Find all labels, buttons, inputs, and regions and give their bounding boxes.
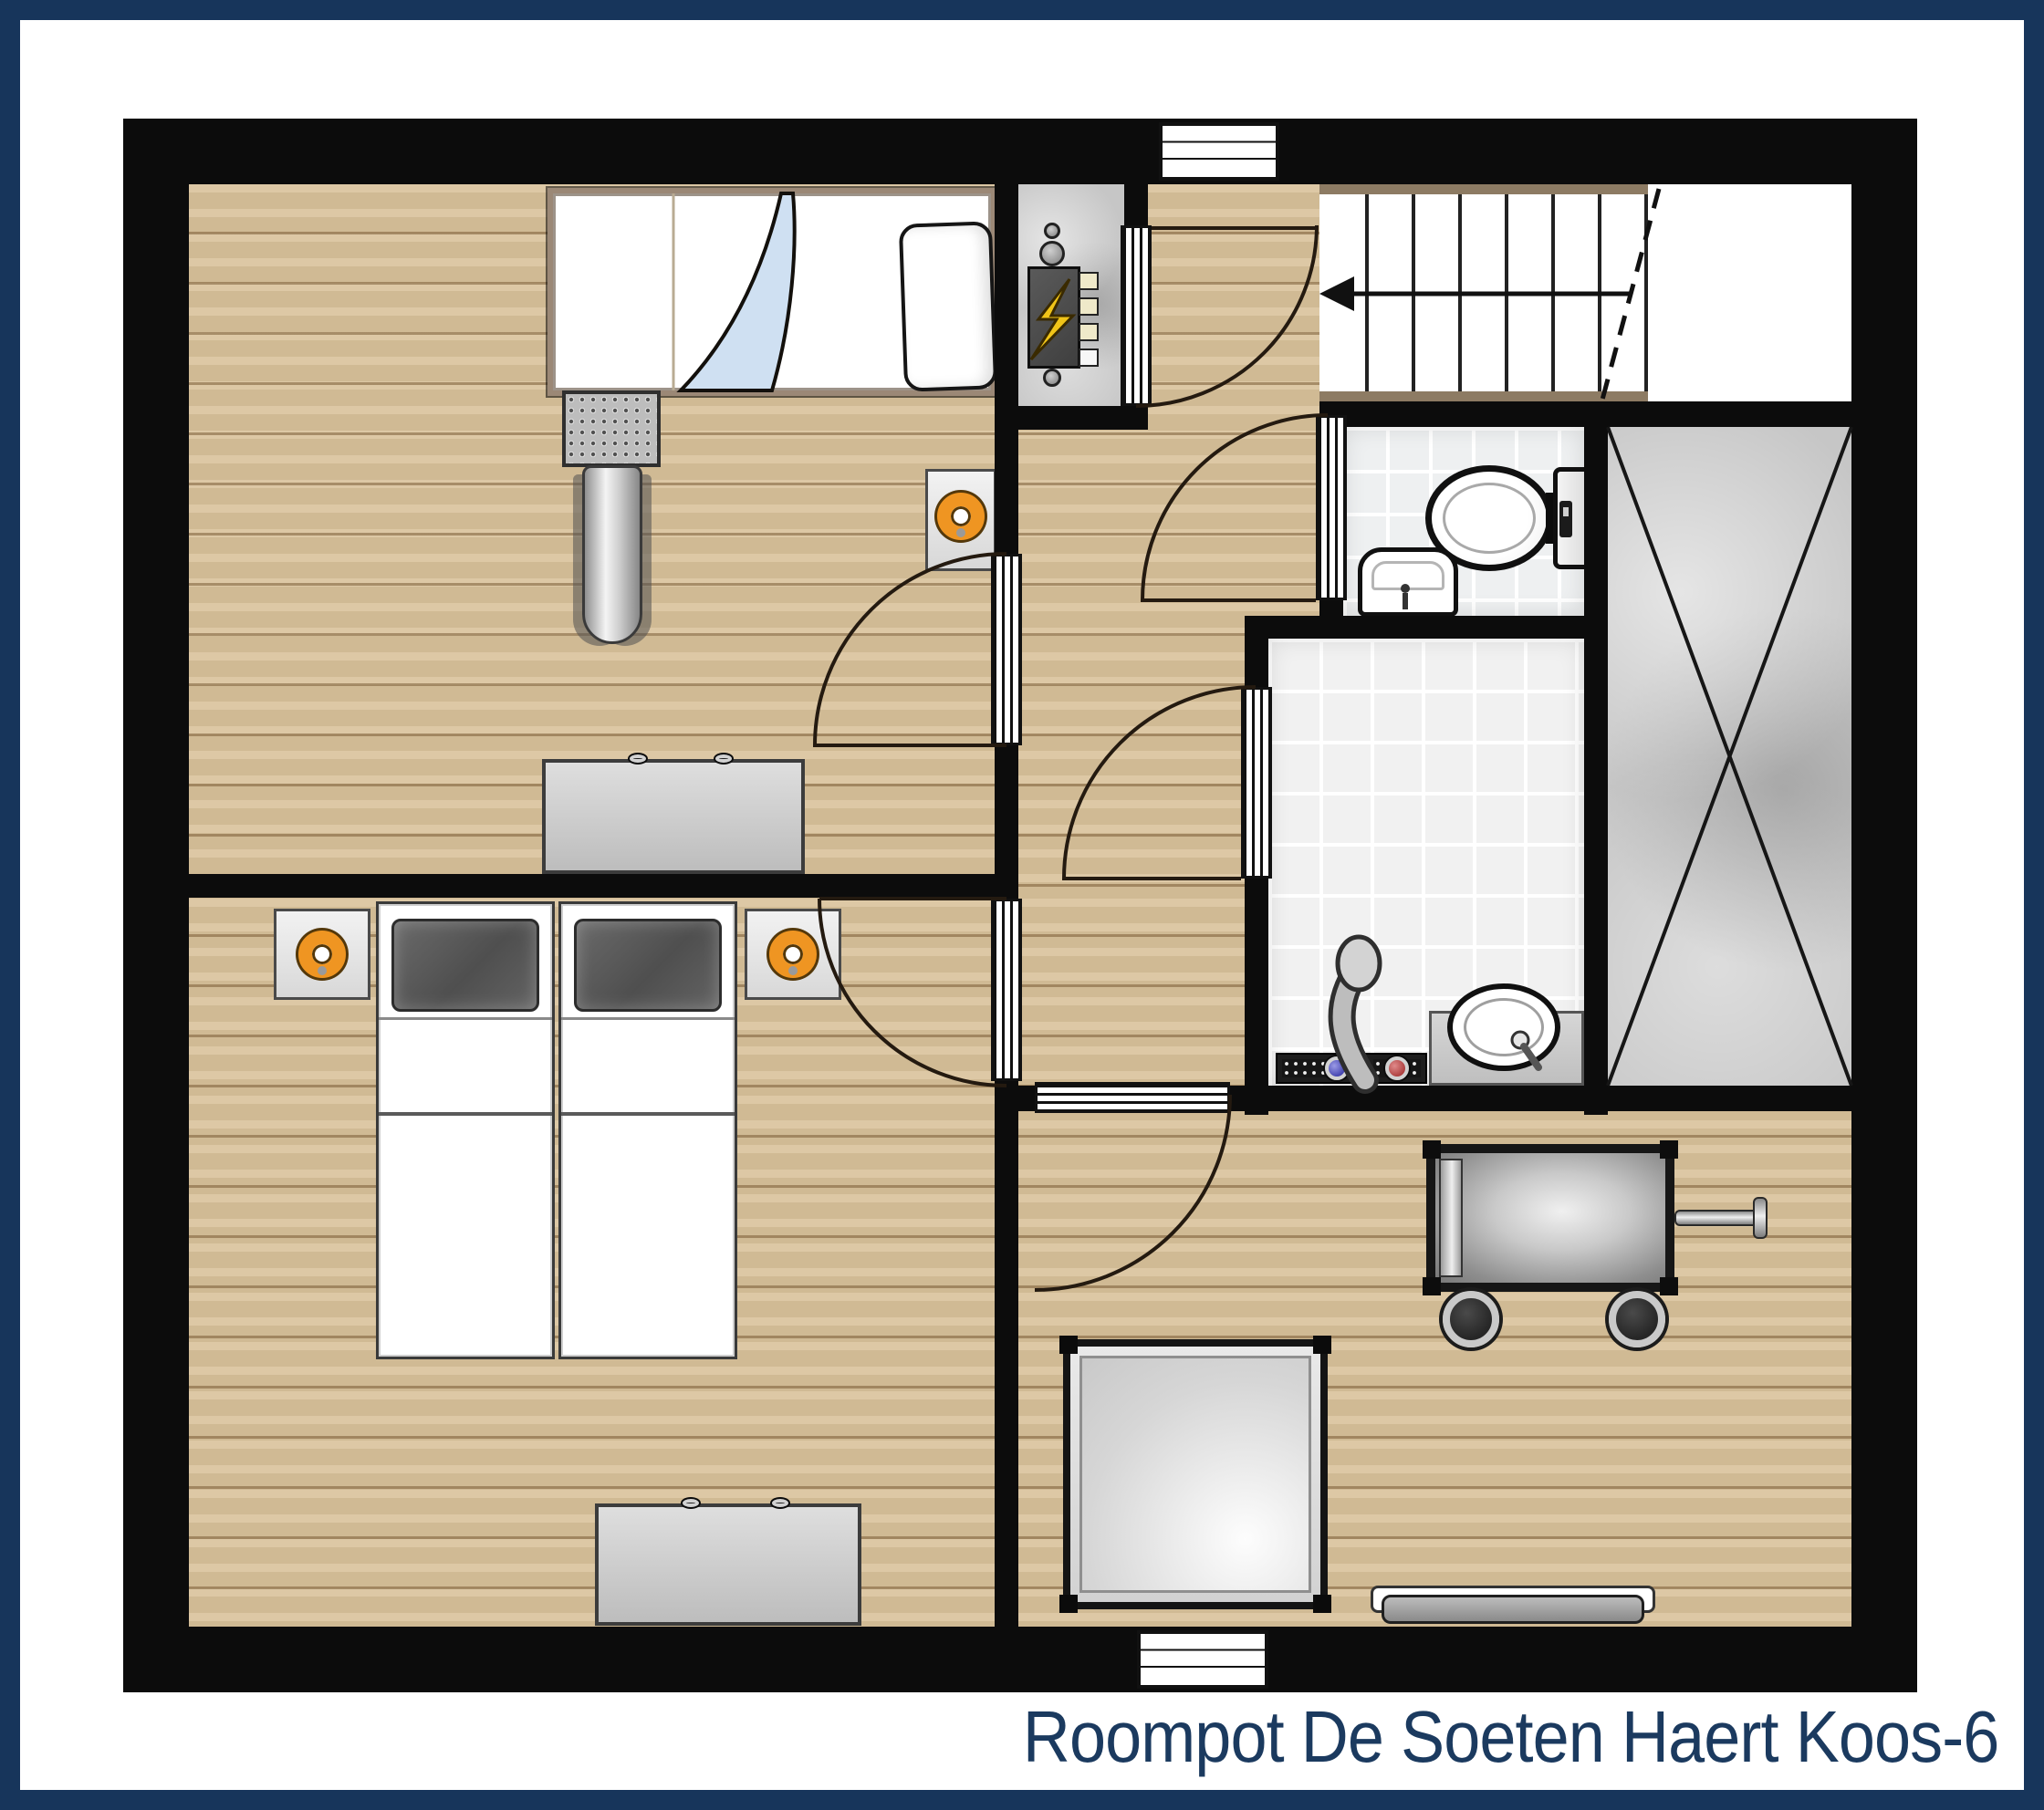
- navy-frame-border: [0, 0, 2044, 1810]
- floorplan-image: Roompot De Soeten Haert Koos-6: [0, 0, 2044, 1810]
